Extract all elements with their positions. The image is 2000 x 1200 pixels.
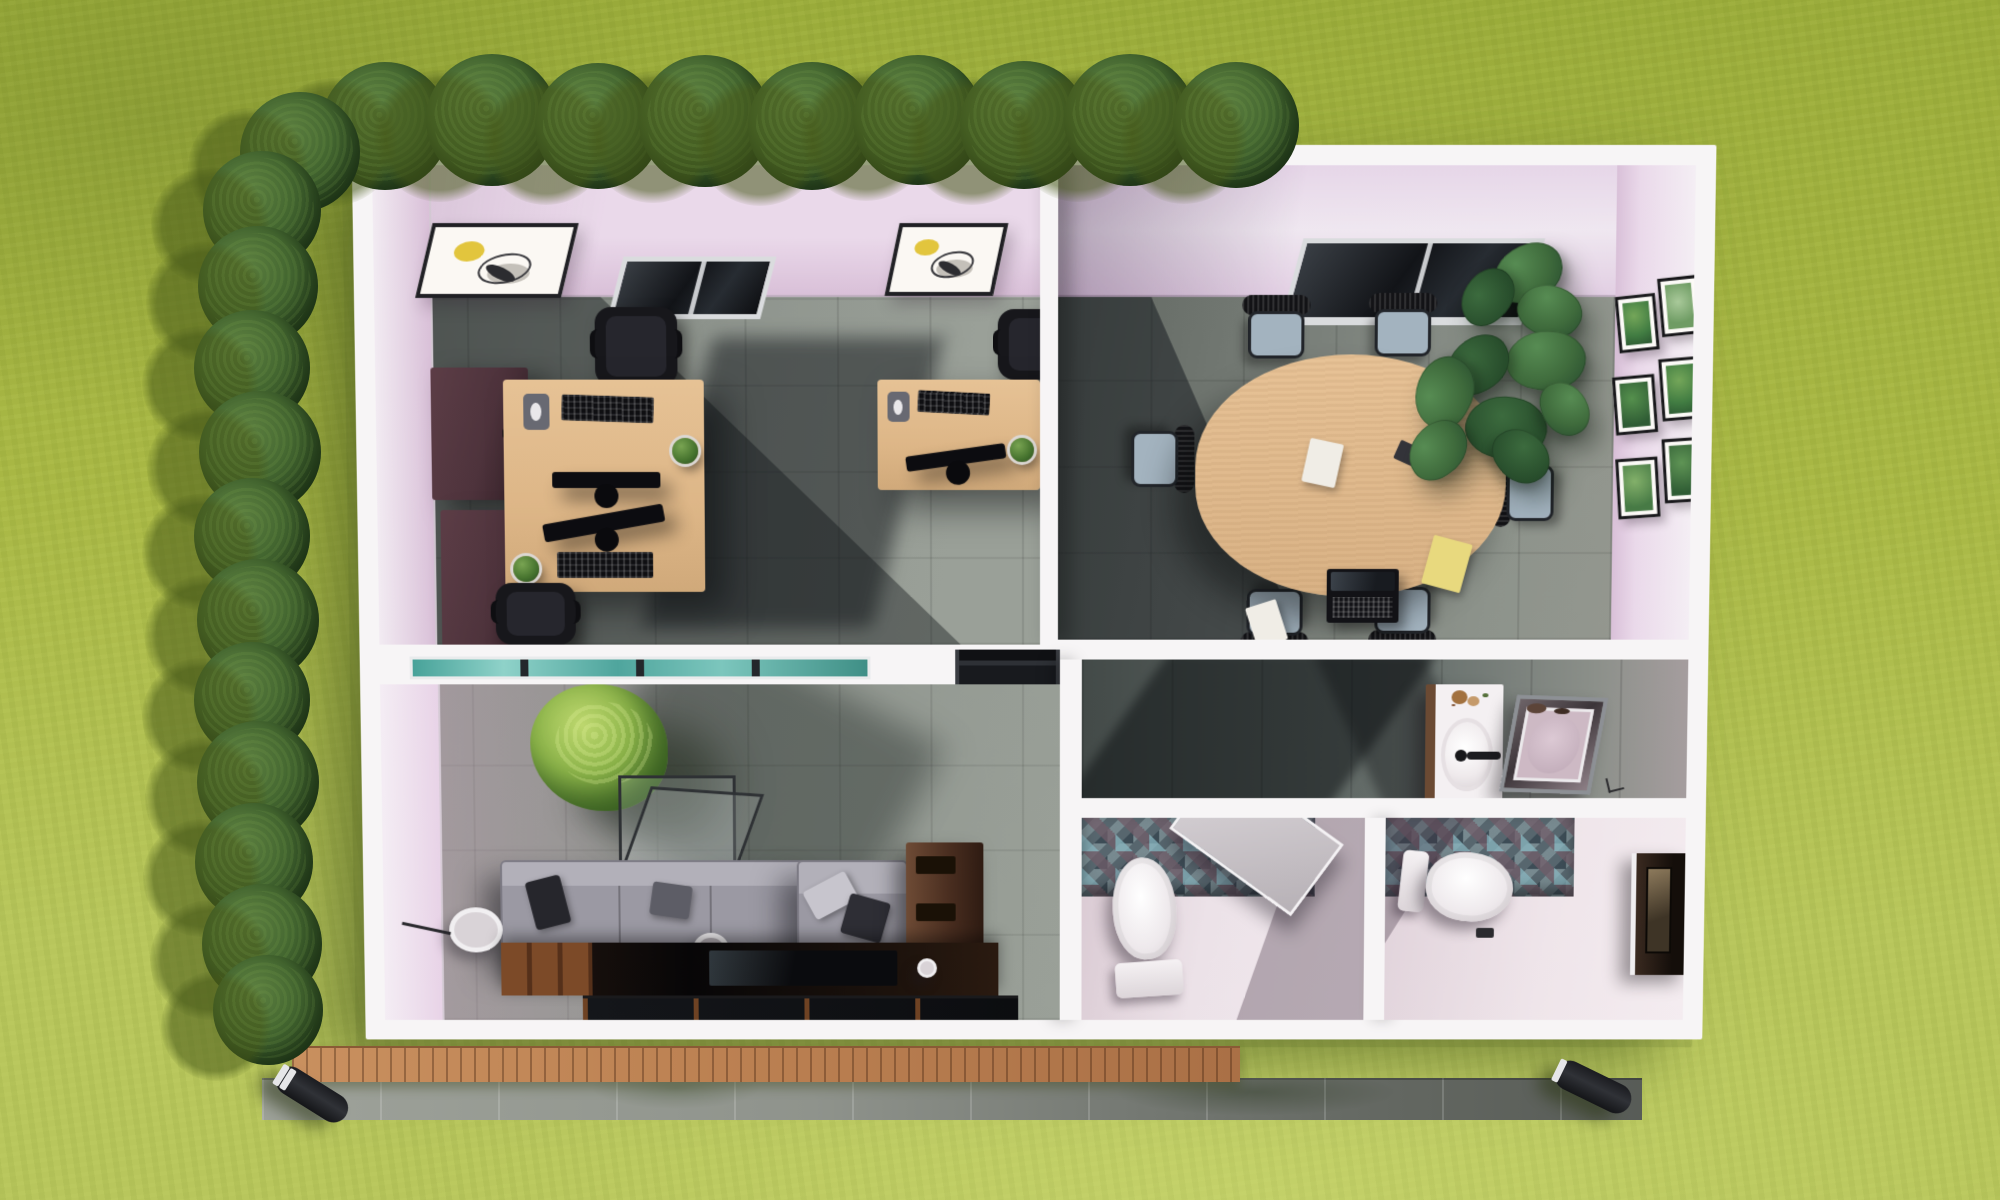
room-office — [372, 165, 1040, 644]
abstract-art-frame — [415, 223, 579, 298]
wall-corridor-stalls — [1082, 798, 1687, 818]
side-table — [449, 907, 503, 952]
office-chair — [594, 307, 677, 386]
paver-path — [262, 1078, 1642, 1120]
tv-screen — [709, 950, 897, 985]
building — [352, 145, 1717, 1040]
paper-sheet — [1301, 438, 1344, 488]
wall-meeting-corridor — [1058, 640, 1689, 660]
room-lounge — [380, 684, 1060, 1020]
room-meeting — [1058, 165, 1696, 639]
hedge-bush — [1173, 62, 1299, 188]
wall-office-lounge — [379, 645, 1060, 685]
botanical-gallery-frame — [1661, 436, 1695, 503]
entry-door-dark — [1630, 853, 1686, 975]
toilet — [1099, 854, 1193, 1007]
faucet — [1455, 750, 1467, 762]
vanity-sink — [1425, 684, 1504, 808]
aerial-floorplan-scene — [0, 0, 2000, 1200]
cushion — [649, 881, 693, 920]
terrace-glazing — [583, 995, 1018, 1019]
botanical-gallery-frame — [1657, 275, 1696, 337]
cushion — [524, 874, 571, 930]
office-chair — [998, 309, 1040, 380]
botanical-gallery-frame — [1658, 356, 1696, 422]
faucet-spout — [1467, 752, 1501, 760]
wall-stall-divider — [1363, 818, 1385, 1020]
office-west-wall — [372, 165, 437, 644]
hedge-bush — [213, 955, 323, 1065]
wall-lounge-washroom — [1060, 660, 1082, 1020]
flowers — [1452, 690, 1468, 704]
monstera-plant — [1396, 244, 1589, 491]
botanical-gallery-frame — [1615, 457, 1660, 520]
lounge-door-opening — [955, 650, 1060, 685]
lounge-west-wall — [380, 684, 445, 1020]
shower — [1499, 695, 1608, 795]
toilet — [1396, 844, 1519, 930]
abstract-art-frame — [884, 223, 1008, 296]
glass-coffee-table — [618, 775, 736, 864]
single-desk — [877, 380, 1040, 490]
clerestory-window — [410, 657, 871, 680]
conference-chair — [1128, 422, 1194, 496]
toilet-stall-left — [1081, 818, 1364, 1020]
toilet-stall-right — [1384, 818, 1686, 1020]
tv-media-wall — [501, 943, 998, 996]
botanical-gallery-frame — [1615, 293, 1660, 353]
wood-deck — [292, 1046, 1240, 1082]
laptop — [1327, 569, 1399, 623]
botanical-gallery-frame — [1612, 374, 1658, 436]
toilet-paper-holder — [1476, 928, 1494, 938]
double-workstation-desk — [503, 380, 705, 592]
office-chair — [495, 583, 576, 645]
wall-office-meeting — [1040, 165, 1058, 644]
conference-chair — [1239, 295, 1314, 362]
